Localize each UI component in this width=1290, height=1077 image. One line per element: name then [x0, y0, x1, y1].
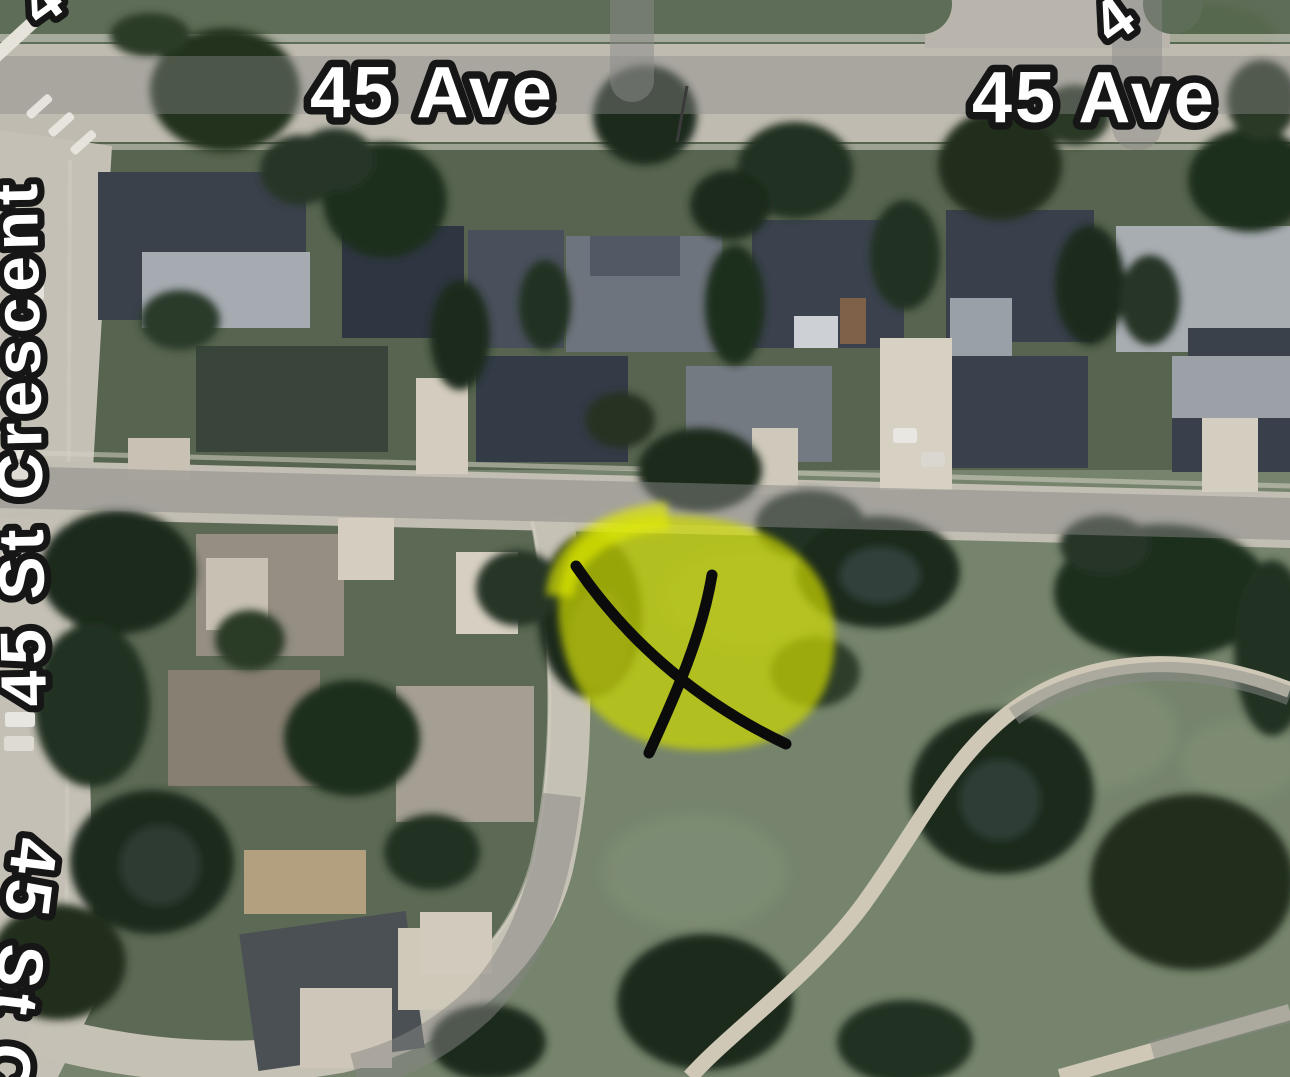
parked-car: [4, 736, 34, 751]
tree: [284, 680, 420, 796]
grass-patch: [603, 814, 787, 930]
driveway: [1202, 418, 1258, 492]
street-label-45-ave-left: 45 Ave: [310, 53, 555, 133]
driveway: [338, 518, 394, 580]
tree: [140, 290, 220, 350]
tree-highlight: [960, 760, 1040, 840]
tree: [1055, 225, 1125, 345]
parked-car: [893, 428, 917, 443]
tree: [110, 13, 190, 57]
map-canvas: 45 Ave 45 Ave 45 St Crescent 45 St C 4 4: [0, 0, 1290, 1077]
tree: [40, 510, 196, 634]
tree: [585, 392, 655, 448]
parked-car: [921, 452, 945, 467]
tree: [1120, 255, 1180, 345]
tree-highlight: [120, 825, 200, 905]
house-roof: [244, 850, 366, 914]
parked-car: [5, 712, 35, 727]
tree-highlight: [840, 547, 920, 603]
tree: [705, 245, 765, 365]
tree: [1090, 794, 1290, 970]
house-roof: [590, 236, 680, 276]
tree: [870, 200, 940, 310]
tree: [430, 280, 490, 390]
house-roof: [840, 298, 866, 344]
driveway: [880, 338, 952, 490]
tree: [295, 128, 375, 192]
street-label-45-ave-right: 45 Ave: [972, 58, 1217, 138]
house-roof: [196, 346, 388, 452]
driveway: [420, 912, 492, 974]
tree: [215, 610, 285, 670]
tree: [384, 814, 480, 890]
driveway: [416, 378, 468, 474]
house-roof: [946, 356, 1088, 468]
tree: [690, 170, 770, 240]
house-roof: [794, 316, 838, 348]
street-label-45-st-crescent: 45 St Crescent: [0, 177, 60, 707]
tree: [519, 260, 571, 350]
label-band-north-street: [610, 0, 654, 102]
satellite-map: 45 Ave 45 Ave 45 St Crescent 45 St C 4 4: [0, 0, 1290, 1077]
